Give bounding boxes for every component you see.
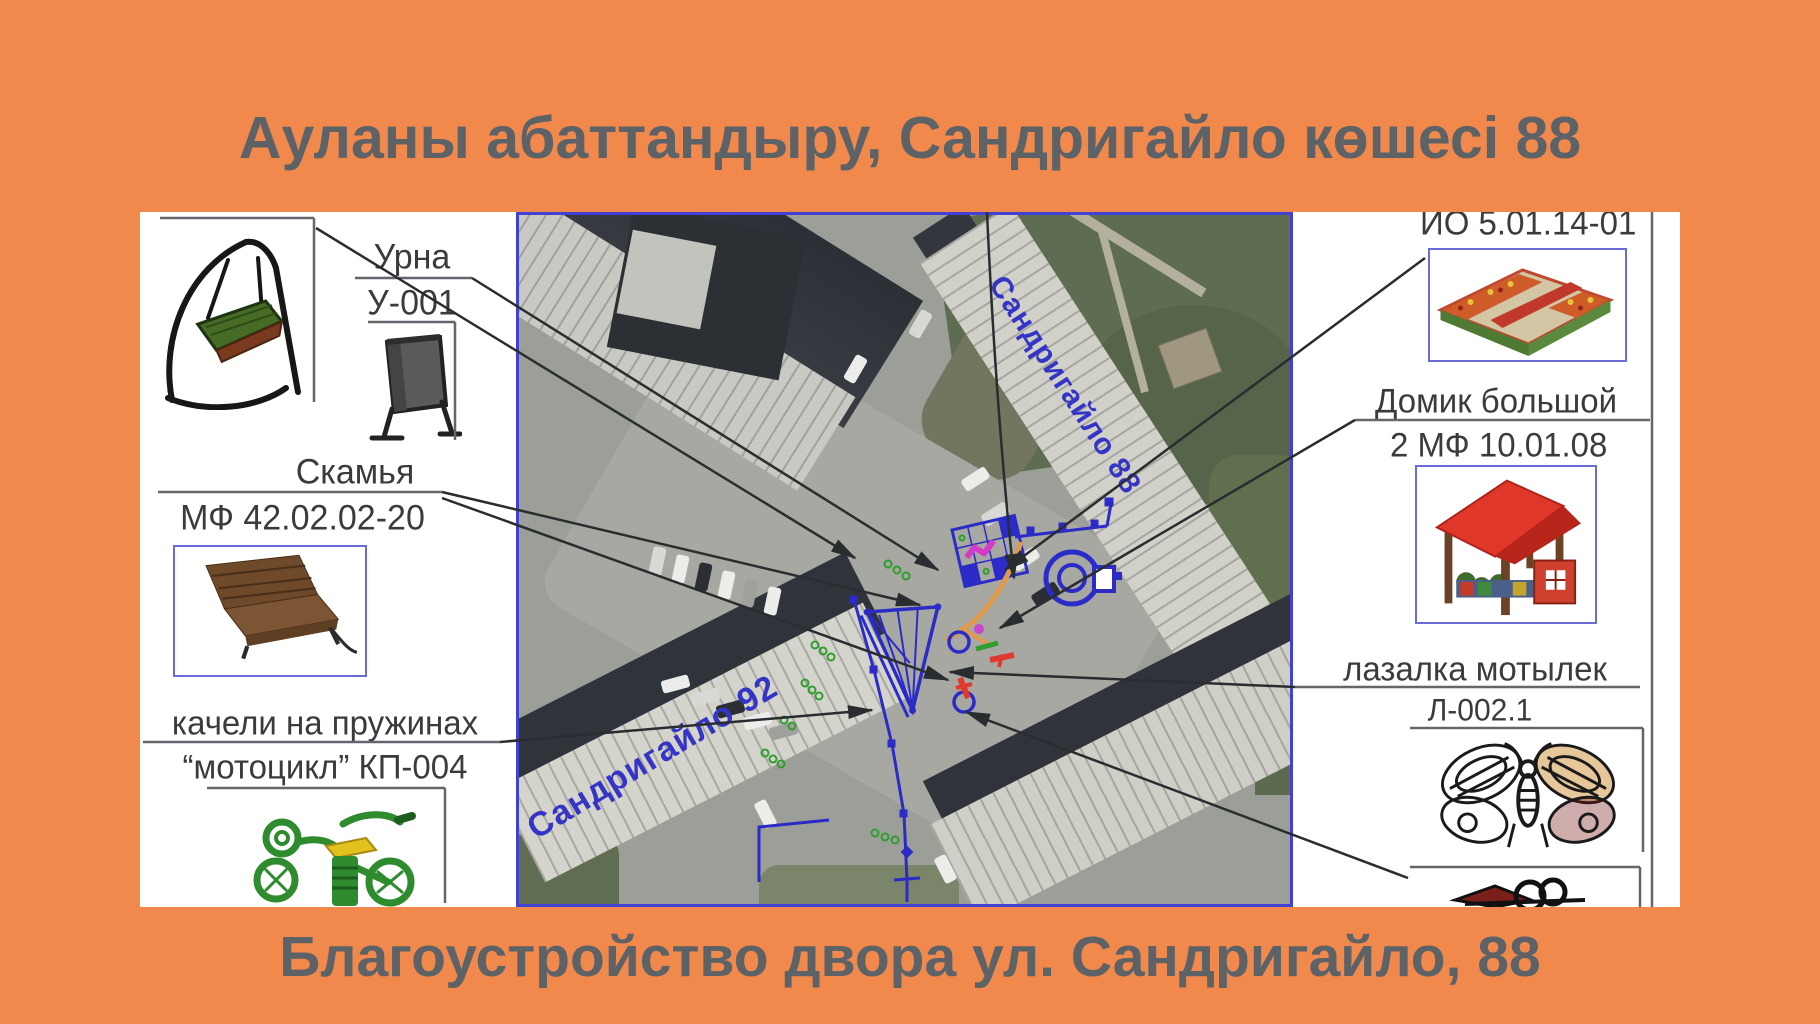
motorcycle-rocker-photo-icon — [248, 794, 438, 907]
car — [753, 799, 777, 830]
equipment-partial-drawing-icon — [1435, 872, 1615, 907]
page-title-russian: Благоустройство двора ул. Сандригайло, 8… — [0, 924, 1820, 990]
plan-sheet: Сандригайло 88 Сандригайло 92 Урна У-001… — [140, 212, 1680, 907]
urn-label: Урна — [352, 237, 472, 278]
vegetation-patch — [759, 865, 959, 907]
building-roof-light — [617, 230, 717, 330]
bench-code: МФ 42.02.02-20 — [160, 498, 445, 539]
playhouse-code: 2 МФ 10.01.08 — [1390, 425, 1605, 465]
page-title-kazakh: Ауланы абаттандыру, Сандригайло көшесі 8… — [0, 104, 1820, 172]
sandbox-photo — [1428, 248, 1627, 362]
playhouse-label: Домик большой — [1375, 381, 1615, 421]
bench-label: Скамья — [260, 452, 450, 493]
poster: { "titles": { "top": "Ауланы абаттандыру… — [0, 0, 1820, 1024]
bench-photo — [173, 545, 367, 677]
spring-rocker-label: качели на пружинах — [150, 703, 500, 743]
satellite-map: Сандригайло 88 Сандригайло 92 — [516, 212, 1293, 907]
butterfly-climber-drawing-icon — [1418, 730, 1638, 852]
swing-drawing-icon — [158, 220, 318, 410]
urn-drawing-icon — [362, 327, 462, 445]
spring-rocker-code: “мотоцикл” КП-004 — [160, 747, 490, 787]
urn-code: У-001 — [352, 283, 472, 324]
butterfly-climber-code: Л-002.1 — [1410, 693, 1550, 728]
sandbox-code: ИО 5.01.14-01 — [1420, 212, 1635, 243]
playhouse-photo — [1415, 465, 1597, 624]
butterfly-climber-label: лазалка мотылек — [1330, 649, 1620, 689]
